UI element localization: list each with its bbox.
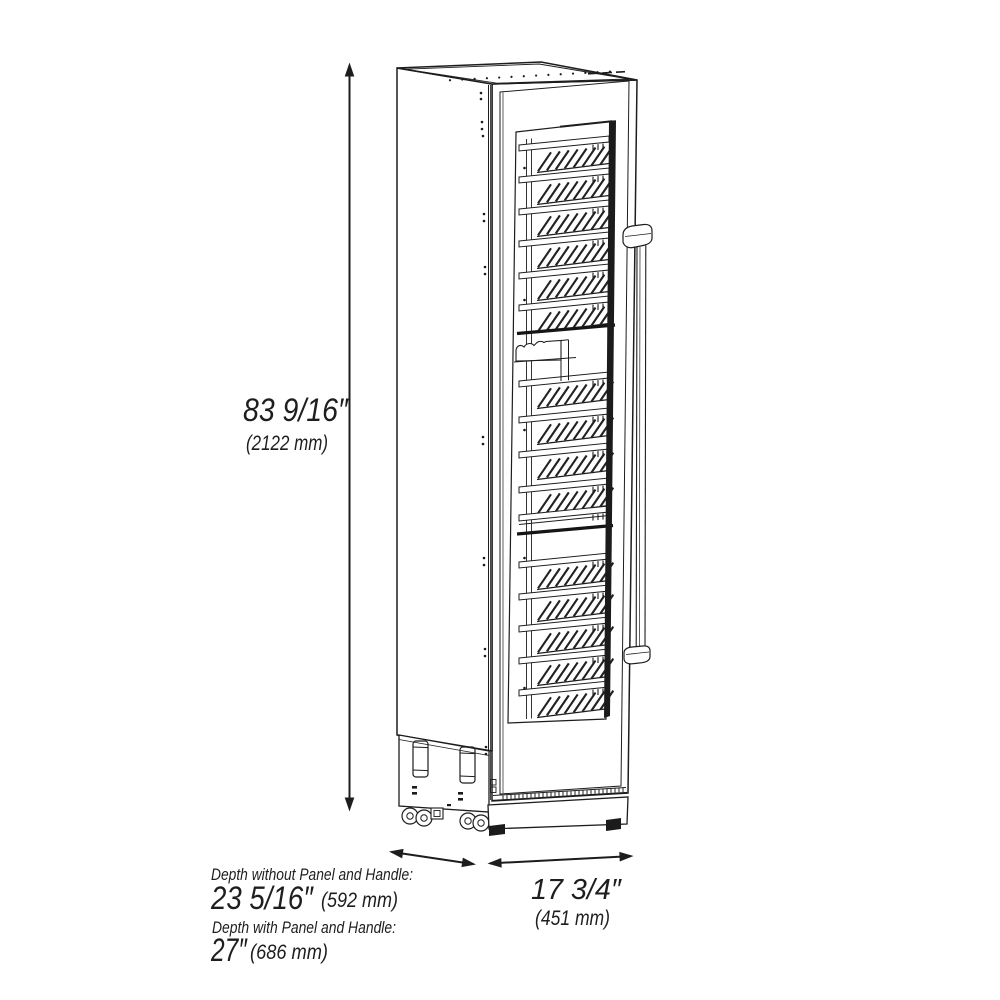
base-platform: [488, 797, 628, 836]
depth-without-panel-mm: (592 mm): [321, 889, 398, 912]
diagram-page: 83 9/16″ (2122 mm) Depth without Panel a…: [0, 0, 1000, 1000]
depth-with-panel-inches: 27″: [210, 932, 248, 968]
left-side-panel: [397, 68, 492, 751]
platform-foot-left: [489, 824, 505, 836]
height-dimension-mm: (2122 mm): [246, 432, 328, 455]
handle-bottom-mount: [624, 646, 650, 664]
cabinet-drawing: [397, 62, 652, 836]
width-dimension-inches: 17 3/4″: [531, 874, 623, 906]
width-dimension-arrow: [487, 851, 633, 868]
wine-cooler-dimension-diagram: 83 9/16″ (2122 mm) Depth without Panel a…: [0, 0, 1000, 1000]
width-dimension-mm: (451 mm): [535, 907, 610, 930]
platform-foot-right: [606, 818, 621, 831]
height-dimension-inches: 83 9/16″: [243, 392, 349, 428]
depth-without-panel-inches: 23 5/16″: [210, 880, 314, 916]
height-dimension-arrow: [345, 63, 355, 812]
depth-with-panel-mm: (686 mm): [250, 941, 328, 964]
